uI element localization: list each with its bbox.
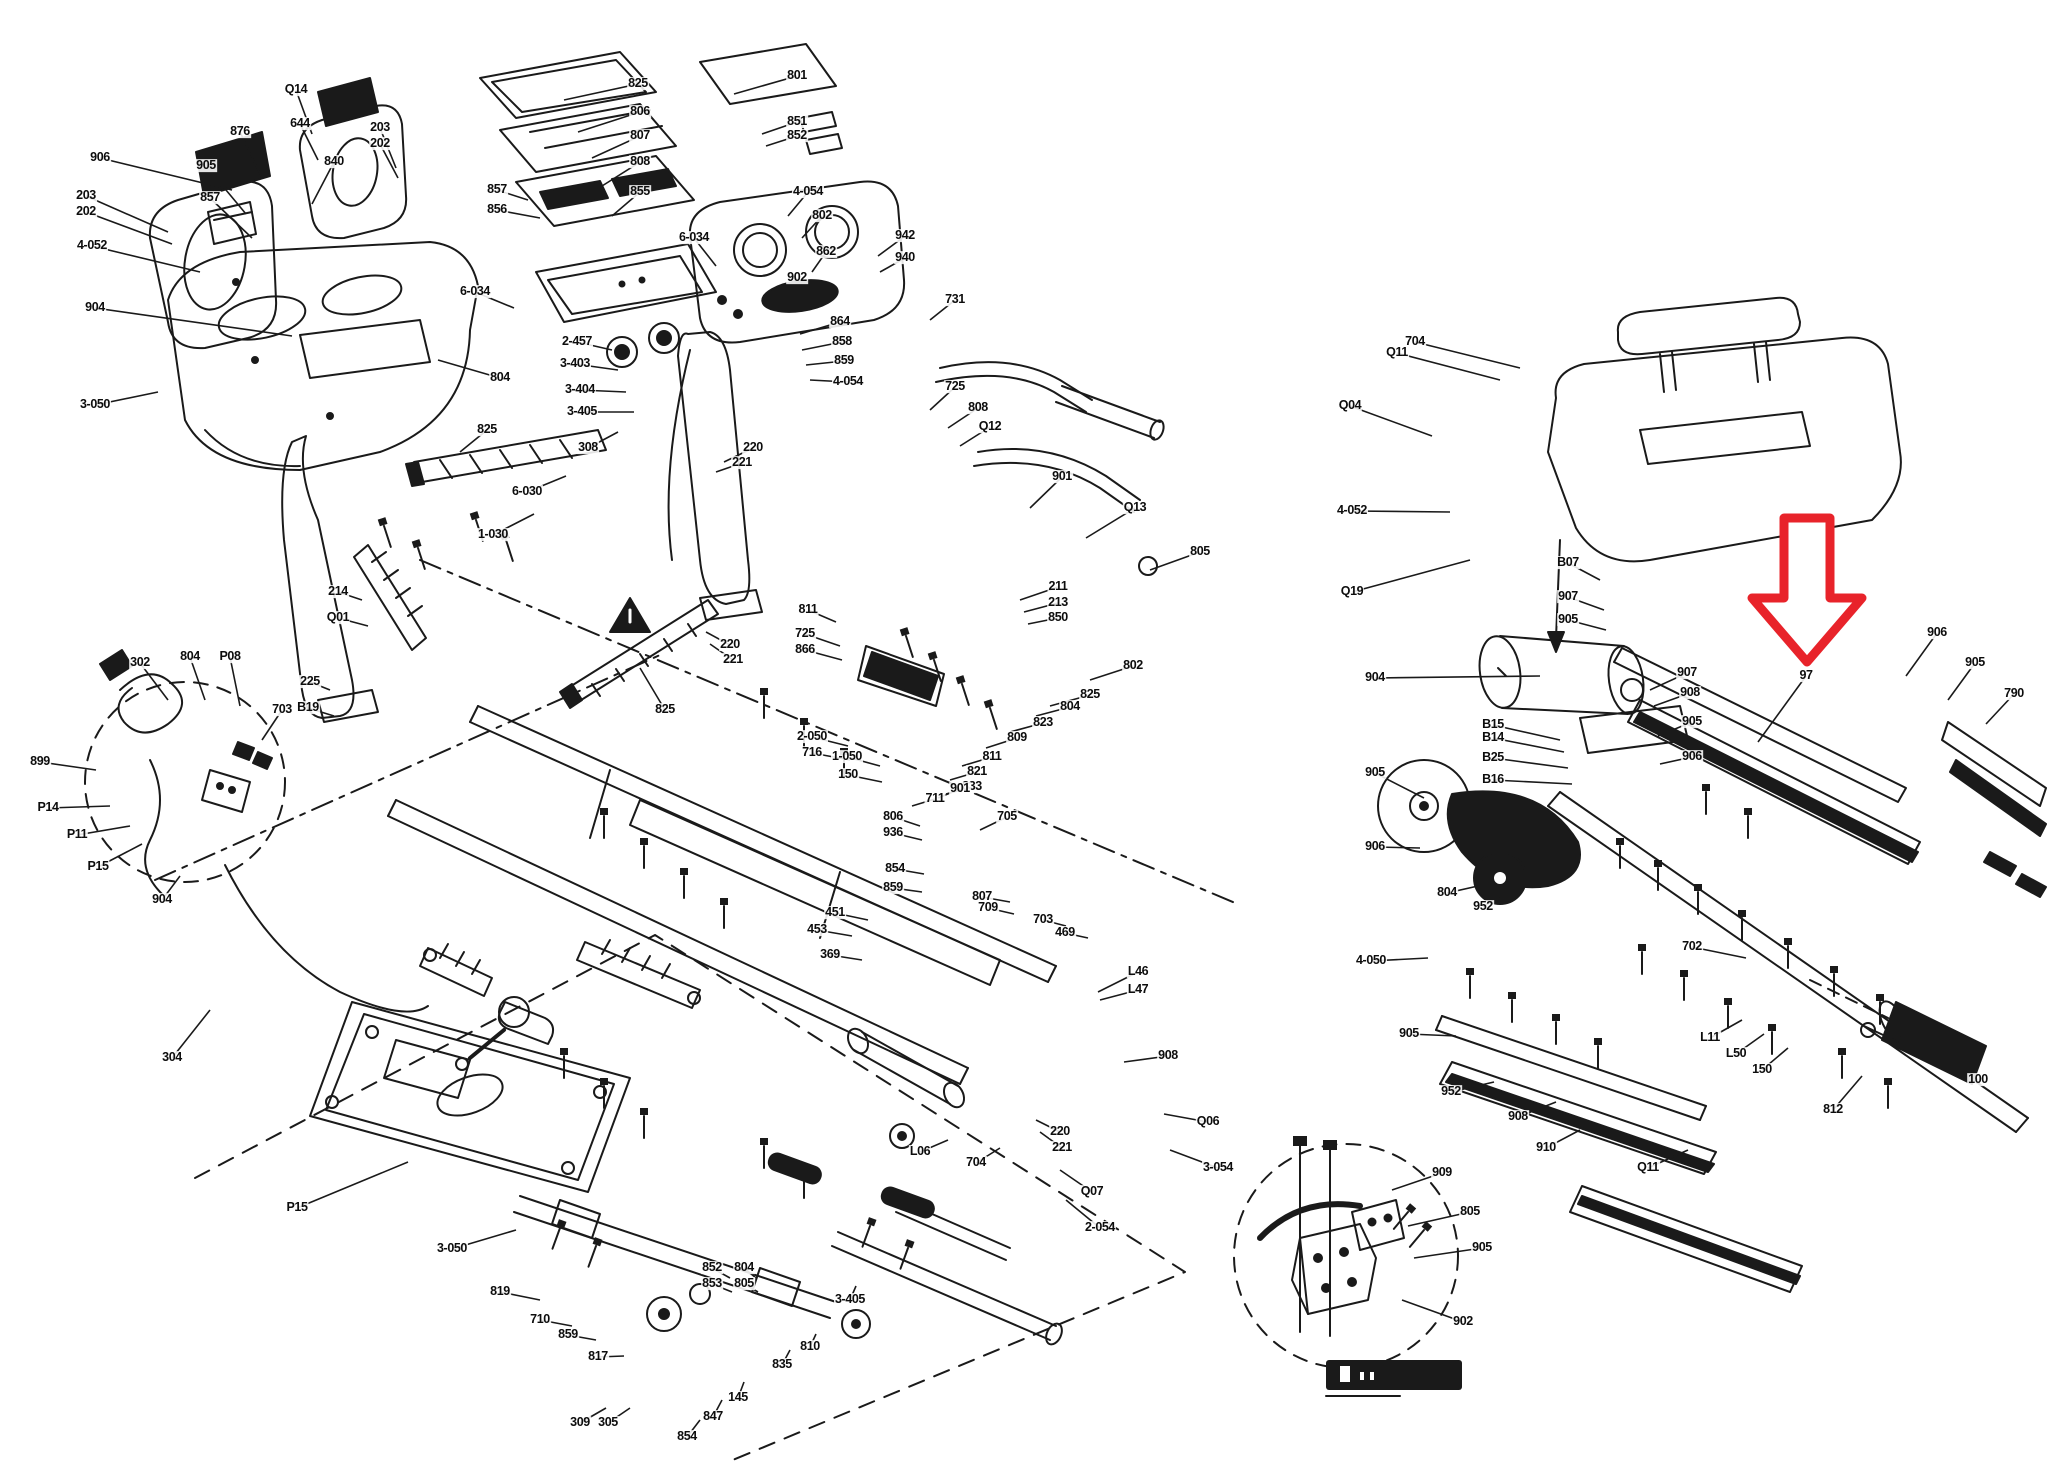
part-label: 811 bbox=[798, 603, 819, 616]
part-label: 145 bbox=[727, 1391, 749, 1404]
part-label: 907 bbox=[1557, 590, 1579, 603]
part-label: 905 bbox=[1471, 1241, 1493, 1254]
part-label: 857 bbox=[199, 191, 221, 204]
part-label: 817 bbox=[587, 1350, 609, 1363]
part-label: 858 bbox=[831, 335, 853, 348]
part-label: Q04 bbox=[1338, 399, 1362, 412]
part-label: 150 bbox=[837, 768, 859, 781]
part-label: 905 bbox=[1398, 1027, 1420, 1040]
part-label: 840 bbox=[323, 155, 345, 168]
part-label: 859 bbox=[557, 1328, 579, 1341]
part-label: 4-050 bbox=[1355, 954, 1387, 967]
part-label: 821 bbox=[966, 765, 988, 778]
part-label: Q11 bbox=[1636, 1161, 1660, 1174]
part-label: 202 bbox=[369, 137, 391, 150]
part-label: 100 bbox=[1967, 1073, 1989, 1086]
part-label: 901 bbox=[949, 782, 971, 795]
part-label: 936 bbox=[882, 826, 904, 839]
part-label: 907 bbox=[1676, 666, 1698, 679]
part-label: 220 bbox=[1049, 1125, 1071, 1138]
part-label: 825 bbox=[627, 77, 649, 90]
part-label: 703 bbox=[1032, 913, 1054, 926]
part-label: 811 bbox=[982, 750, 1003, 763]
part-label: 213 bbox=[1047, 596, 1069, 609]
part-label: P11 bbox=[66, 828, 88, 841]
part-label: Q01 bbox=[326, 611, 350, 624]
part-label: 808 bbox=[629, 155, 651, 168]
part-label: 804 bbox=[1436, 886, 1458, 899]
part-label: 790 bbox=[2003, 687, 2025, 700]
part-label: 644 bbox=[289, 117, 311, 130]
part-label: 6-030 bbox=[511, 485, 543, 498]
part-label: 906 bbox=[1681, 750, 1703, 763]
part-label: 908 bbox=[1507, 1110, 1529, 1123]
part-label: 899 bbox=[29, 755, 51, 768]
part-label: 850 bbox=[1047, 611, 1069, 624]
part-label: Q07 bbox=[1080, 1185, 1104, 1198]
part-label: 825 bbox=[654, 703, 676, 716]
part-label: 905 bbox=[195, 159, 217, 172]
part-label: 203 bbox=[369, 121, 391, 134]
leader-line bbox=[1397, 353, 1500, 380]
part-label: 825 bbox=[1079, 688, 1101, 701]
part-label: 862 bbox=[815, 245, 837, 258]
leader-line bbox=[1415, 342, 1520, 368]
part-label: 705 bbox=[996, 810, 1018, 823]
part-label: 804 bbox=[489, 371, 511, 384]
leader-line bbox=[1352, 560, 1470, 592]
part-label: P14 bbox=[36, 801, 59, 814]
part-label: Q06 bbox=[1196, 1115, 1220, 1128]
part-label: 854 bbox=[676, 1430, 698, 1443]
part-label: 202 bbox=[75, 205, 97, 218]
part-label: 731 bbox=[944, 293, 966, 306]
part-label: 902 bbox=[1452, 1315, 1474, 1328]
part-label: 1-030 bbox=[477, 528, 509, 541]
part-label: 805 bbox=[733, 1277, 755, 1290]
part-label: 3-050 bbox=[79, 398, 111, 411]
part-label: 451 bbox=[824, 906, 846, 919]
part-label: 702 bbox=[1681, 940, 1703, 953]
part-label: L50 bbox=[1725, 1047, 1747, 1060]
part-label: 2-054 bbox=[1084, 1221, 1116, 1234]
part-label: 4-052 bbox=[76, 239, 108, 252]
leader-line bbox=[230, 657, 240, 706]
part-label: 806 bbox=[882, 810, 904, 823]
part-label: 855 bbox=[629, 185, 651, 198]
part-label: 305 bbox=[597, 1416, 619, 1429]
part-label: 203 bbox=[75, 189, 97, 202]
part-label: 901 bbox=[1051, 470, 1073, 483]
leader-line bbox=[1350, 406, 1432, 436]
part-label: 703 bbox=[271, 703, 293, 716]
part-label: B15 bbox=[1481, 718, 1505, 731]
part-label: 3-403 bbox=[559, 357, 591, 370]
part-label: 856 bbox=[486, 203, 508, 216]
part-label: 469 bbox=[1054, 926, 1076, 939]
part-label: L47 bbox=[1127, 983, 1149, 996]
part-label: 804 bbox=[179, 650, 201, 663]
leader-line bbox=[1375, 676, 1540, 678]
part-label: 864 bbox=[829, 315, 851, 328]
part-label: 859 bbox=[833, 354, 855, 367]
part-label: 823 bbox=[1032, 716, 1054, 729]
part-label: 802 bbox=[1122, 659, 1144, 672]
part-label: P08 bbox=[218, 650, 241, 663]
part-label: 6-034 bbox=[678, 231, 710, 244]
part-label: 3-054 bbox=[1202, 1161, 1234, 1174]
part-label: 220 bbox=[719, 638, 741, 651]
part-label: Q11 bbox=[1385, 346, 1409, 359]
part-label: 369 bbox=[819, 948, 841, 961]
part-label: 851 bbox=[786, 115, 808, 128]
part-label: L46 bbox=[1127, 965, 1149, 978]
leader-line bbox=[1906, 633, 1937, 676]
part-label: P15 bbox=[285, 1201, 308, 1214]
part-label: 150 bbox=[1751, 1063, 1773, 1076]
part-label: 952 bbox=[1472, 900, 1494, 913]
part-label: 2-050 bbox=[796, 730, 828, 743]
part-label: 4-052 bbox=[1336, 504, 1368, 517]
part-label: 857 bbox=[486, 183, 508, 196]
part-label: 904 bbox=[1364, 671, 1386, 684]
part-label: 304 bbox=[161, 1051, 183, 1064]
part-label: 819 bbox=[489, 1285, 511, 1298]
part-label: 825 bbox=[476, 423, 498, 436]
part-label: 835 bbox=[771, 1358, 793, 1371]
part-label: 847 bbox=[702, 1410, 724, 1423]
part-label: 4-054 bbox=[792, 185, 824, 198]
part-label: 704 bbox=[965, 1156, 987, 1169]
part-label: 453 bbox=[806, 923, 828, 936]
part-label: 808 bbox=[967, 401, 989, 414]
part-label: 810 bbox=[799, 1340, 821, 1353]
part-label: 906 bbox=[89, 151, 111, 164]
part-label: 906 bbox=[1364, 840, 1386, 853]
part-label: B07 bbox=[1556, 556, 1580, 569]
part-label: 725 bbox=[794, 627, 816, 640]
part-label: 3-404 bbox=[564, 383, 596, 396]
leader-line bbox=[95, 308, 292, 336]
part-label: 906 bbox=[1926, 626, 1948, 639]
part-label: 905 bbox=[1364, 766, 1386, 779]
part-label: 905 bbox=[1964, 656, 1986, 669]
part-label: B14 bbox=[1481, 731, 1505, 744]
part-label: 221 bbox=[1051, 1141, 1073, 1154]
parts-diagram-page: 9062032024-052904876905857644840Q1420320… bbox=[0, 0, 2048, 1465]
part-label: 3-405 bbox=[834, 1293, 866, 1306]
part-label: 940 bbox=[894, 251, 916, 264]
part-label: 805 bbox=[1459, 1205, 1481, 1218]
leader-line bbox=[297, 1162, 408, 1208]
part-label: 942 bbox=[894, 229, 916, 242]
part-label: 806 bbox=[629, 105, 651, 118]
part-label: 709 bbox=[977, 901, 999, 914]
part-label: 2-457 bbox=[561, 335, 593, 348]
part-label: 866 bbox=[794, 643, 816, 656]
part-label: 852 bbox=[786, 129, 808, 142]
part-label: P15 bbox=[86, 860, 109, 873]
part-label: 908 bbox=[1157, 1049, 1179, 1062]
part-label: 909 bbox=[1431, 1166, 1453, 1179]
part-label: Q14 bbox=[284, 83, 308, 96]
part-label: 859 bbox=[882, 881, 904, 894]
part-label: 214 bbox=[327, 585, 349, 598]
part-label: 904 bbox=[151, 893, 173, 906]
part-label: 3-050 bbox=[436, 1242, 468, 1255]
part-label: 812 bbox=[1822, 1103, 1844, 1116]
part-label: 211 bbox=[1048, 580, 1069, 593]
part-label: L06 bbox=[909, 1145, 931, 1158]
part-label: 904 bbox=[84, 301, 106, 314]
part-label: 220 bbox=[742, 441, 764, 454]
part-label: 4-054 bbox=[832, 375, 864, 388]
part-label: L11 bbox=[1699, 1031, 1721, 1044]
part-label: 807 bbox=[629, 129, 651, 142]
part-label: 97 bbox=[1798, 669, 1813, 682]
part-label: 852 bbox=[701, 1261, 723, 1274]
part-label: 221 bbox=[722, 653, 744, 666]
part-label: 716 bbox=[801, 746, 823, 759]
part-label: 302 bbox=[129, 656, 151, 669]
part-label: 1-050 bbox=[831, 750, 863, 763]
part-label: 905 bbox=[1681, 715, 1703, 728]
part-label: 876 bbox=[229, 125, 251, 138]
part-label: Q12 bbox=[978, 420, 1002, 433]
leader-line bbox=[1758, 676, 1806, 742]
leader-line bbox=[190, 657, 205, 700]
part-label: 804 bbox=[1059, 700, 1081, 713]
part-label: 711 bbox=[925, 792, 946, 805]
part-label: Q19 bbox=[1340, 585, 1364, 598]
leader-line bbox=[240, 132, 262, 178]
part-label: Q13 bbox=[1123, 501, 1147, 514]
part-label: 809 bbox=[1006, 731, 1028, 744]
part-label: B19 bbox=[296, 701, 320, 714]
part-label: 908 bbox=[1679, 686, 1701, 699]
part-label: 225 bbox=[299, 675, 321, 688]
part-label: 308 bbox=[577, 441, 599, 454]
part-label: 6-034 bbox=[459, 285, 491, 298]
part-label: 3-405 bbox=[566, 405, 598, 418]
part-label: 710 bbox=[529, 1313, 551, 1326]
leader-line bbox=[312, 162, 334, 204]
part-label: 801 bbox=[786, 69, 808, 82]
part-label: 221 bbox=[731, 456, 753, 469]
part-label: 725 bbox=[944, 380, 966, 393]
leader-line bbox=[92, 246, 200, 272]
part-label: 952 bbox=[1440, 1085, 1462, 1098]
part-label: 910 bbox=[1535, 1141, 1557, 1154]
part-label: 802 bbox=[811, 209, 833, 222]
part-label: B16 bbox=[1481, 773, 1505, 786]
part-label: 804 bbox=[733, 1261, 755, 1274]
part-label: 805 bbox=[1189, 545, 1211, 558]
part-label: 854 bbox=[884, 862, 906, 875]
part-label: 902 bbox=[786, 271, 808, 284]
part-label: B25 bbox=[1481, 751, 1505, 764]
part-label: 309 bbox=[569, 1416, 591, 1429]
part-label: 905 bbox=[1557, 613, 1579, 626]
part-label: 853 bbox=[701, 1277, 723, 1290]
